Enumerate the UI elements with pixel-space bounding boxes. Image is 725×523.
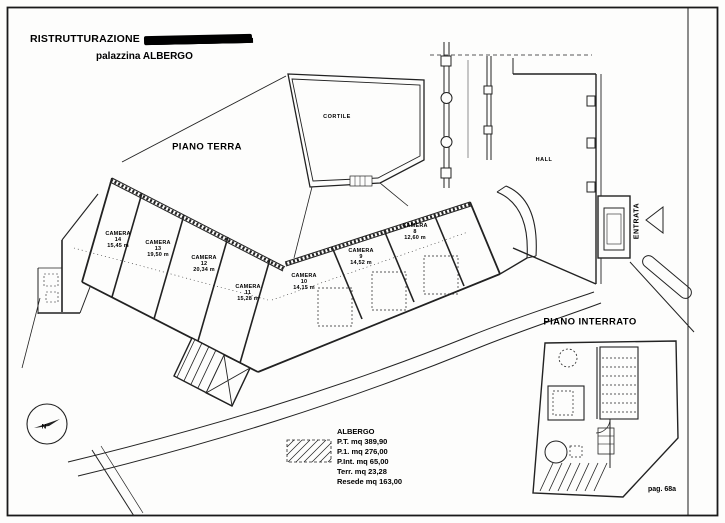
portico-columns — [430, 42, 592, 188]
legend-hatch-swatch — [286, 439, 332, 463]
entrance-structure — [598, 196, 694, 332]
north-arrow-icon — [27, 404, 67, 444]
page-number: pag. 68a — [648, 486, 676, 493]
legend-item: Terr. mq 23,28 — [337, 467, 402, 477]
basement-floor-title: PIANO INTERRATO — [543, 317, 636, 328]
sheet-title-text: RISTRUTTURAZIONE — [30, 33, 140, 45]
redacted-name-scribble — [144, 34, 252, 45]
room-label-camera-14: CAMERA1415,45 m — [105, 231, 130, 249]
curved-connector — [497, 186, 536, 274]
room-label-camera-10: CAMERA1014,15 m — [291, 273, 316, 291]
entrance-label: ENTRATA — [634, 203, 641, 240]
legend-item: P.Int. mq 65,00 — [337, 457, 402, 467]
drawing-sheet: RISTRUTTURAZIONE palazzina ALBERGO PIANO… — [0, 0, 725, 523]
basement-plan — [533, 341, 678, 497]
room-label-camera-13: CAMERA1319,50 m — [145, 240, 170, 258]
legend-item: P.T. mq 389,90 — [337, 437, 402, 447]
room-label-camera-9: CAMERA914,52 m — [348, 248, 373, 266]
legend: ALBERGO P.T. mq 389,90 P.1. mq 276,00 P.… — [337, 427, 402, 487]
room-label-camera-8: CAMERA812,60 m — [402, 223, 427, 241]
sheet-subtitle: palazzina ALBERGO — [96, 51, 193, 62]
courtyard-label: CORTILE — [323, 114, 351, 120]
north-label: N — [42, 424, 47, 431]
sheet-title: RISTRUTTURAZIONE — [30, 33, 252, 45]
hall-walls — [513, 58, 601, 284]
legend-title: ALBERGO — [337, 427, 402, 437]
room-label-camera-11: CAMERA1115,28 m — [235, 284, 260, 302]
legend-item: P.1. mq 276,00 — [337, 447, 402, 457]
left-wing-walls — [38, 178, 285, 372]
hall-label: HALL — [536, 157, 553, 163]
stair-block — [174, 338, 250, 406]
legend-item: Resede mq 163,00 — [337, 477, 402, 487]
ground-floor-title: PIANO TERRA — [172, 142, 242, 153]
room-label-camera-12: CAMERA1220,34 m — [191, 255, 216, 273]
courtyard-outline — [288, 74, 424, 187]
